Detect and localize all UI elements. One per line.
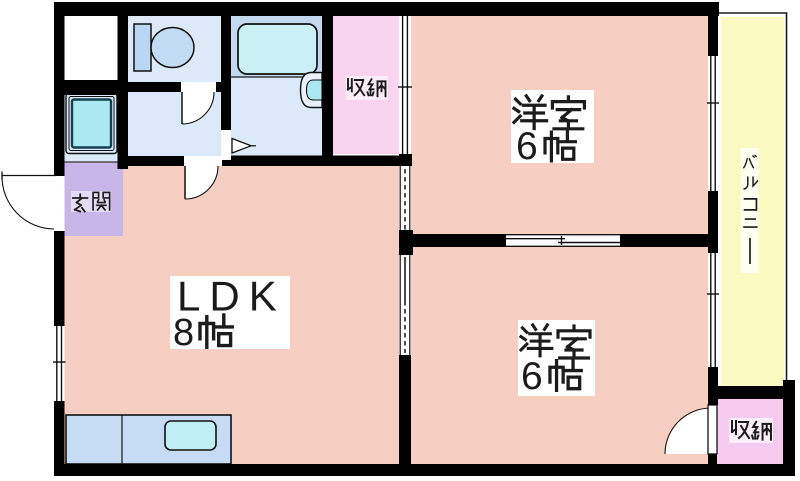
svg-text:6: 6 xyxy=(516,125,538,168)
svg-text:6: 6 xyxy=(521,355,543,398)
svg-text:8: 8 xyxy=(173,312,194,354)
